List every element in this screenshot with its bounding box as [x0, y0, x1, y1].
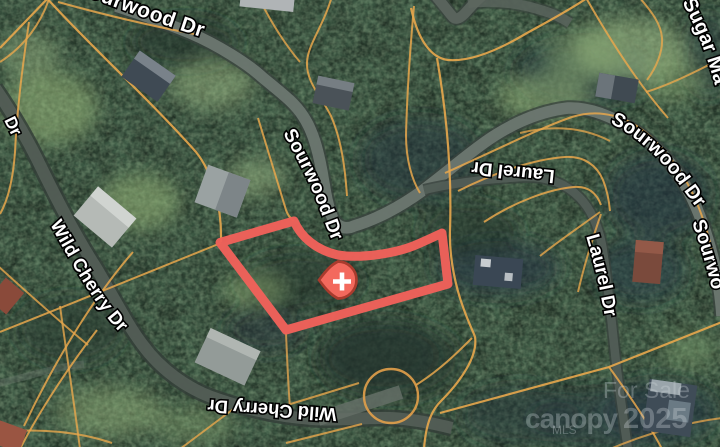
svg-text:2025: 2025: [623, 403, 688, 435]
svg-text:MLS: MLS: [552, 423, 577, 437]
svg-text:For Sale: For Sale: [603, 377, 690, 403]
